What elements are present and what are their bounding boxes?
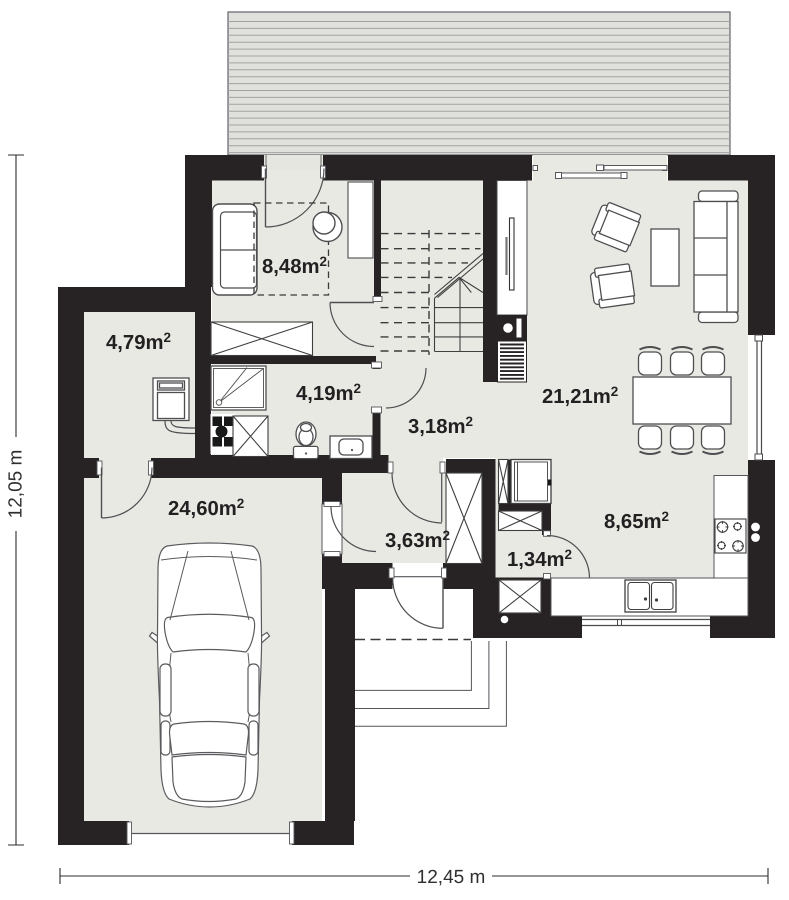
svg-text:8,48m2: 8,48m2	[262, 254, 327, 278]
svg-text:24,60m2: 24,60m2	[168, 496, 244, 520]
svg-text:21,21m2: 21,21m2	[542, 384, 618, 408]
svg-text:1,34m2: 1,34m2	[507, 547, 572, 571]
svg-text:3,63m2: 3,63m2	[385, 528, 450, 552]
svg-text:4,79m2: 4,79m2	[106, 330, 171, 354]
svg-text:4,19m2: 4,19m2	[296, 381, 361, 405]
svg-text:12,05 m: 12,05 m	[6, 450, 27, 519]
svg-text:12,45 m: 12,45 m	[417, 867, 486, 888]
svg-text:8,65m2: 8,65m2	[604, 509, 669, 533]
svg-text:3,18m2: 3,18m2	[408, 414, 473, 438]
